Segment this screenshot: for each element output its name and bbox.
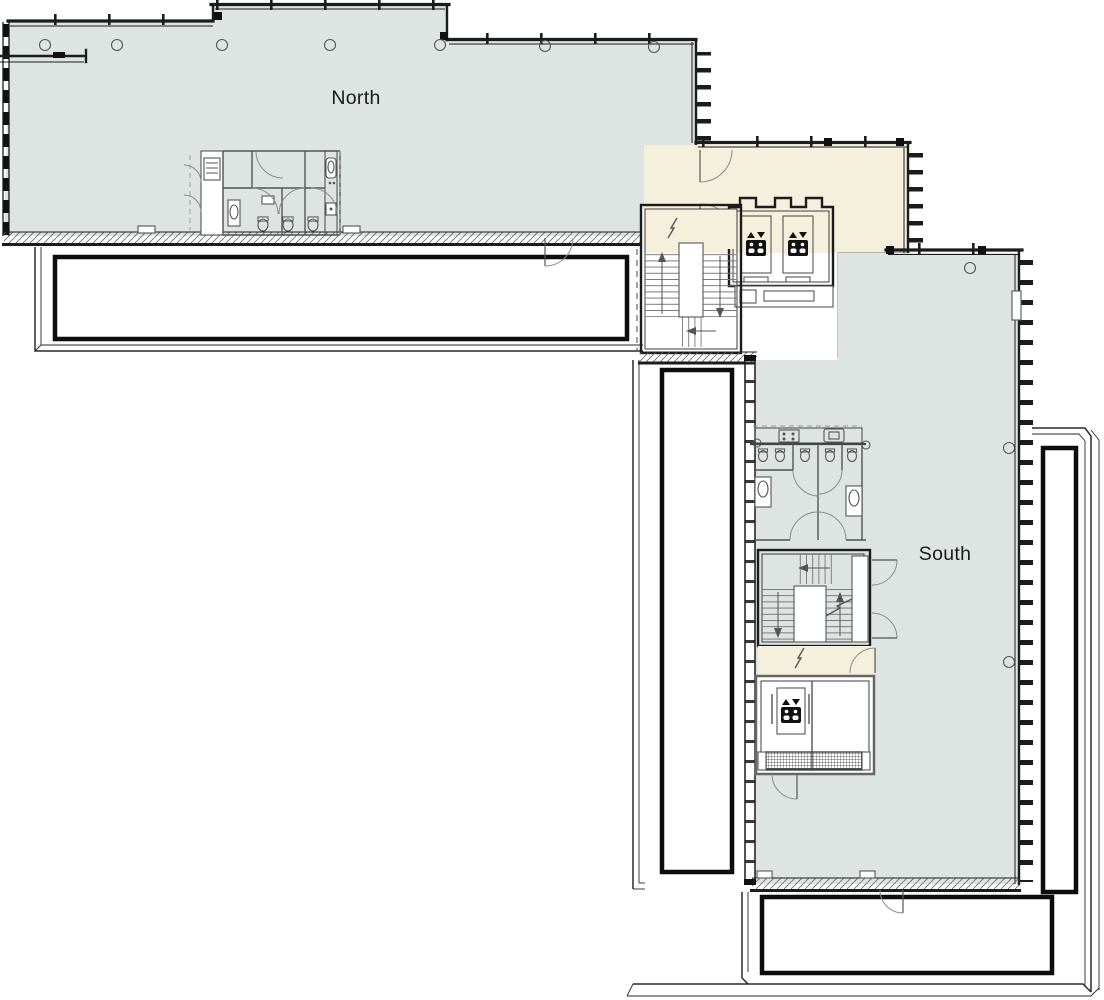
- south-core-lobby: [758, 646, 875, 676]
- north-terrace-parapet: [55, 257, 627, 339]
- floor-plan-canvas: North: [0, 0, 1104, 1000]
- north-wing: North: [0, 0, 711, 266]
- north-terrace: [35, 247, 643, 351]
- floor-plan-page: North: [0, 0, 1104, 1000]
- east-terrace-parapet: [1043, 448, 1076, 892]
- west-terrace-parapet: [662, 370, 732, 872]
- south-terrace: [627, 892, 1099, 996]
- central-stairwell: [641, 205, 741, 353]
- west-terrace: [633, 360, 732, 889]
- south-wing-label: South: [919, 543, 971, 565]
- south-terrace-parapet: [762, 897, 1052, 973]
- louvre-grille: [758, 752, 870, 770]
- north-wing-label: North: [331, 87, 380, 109]
